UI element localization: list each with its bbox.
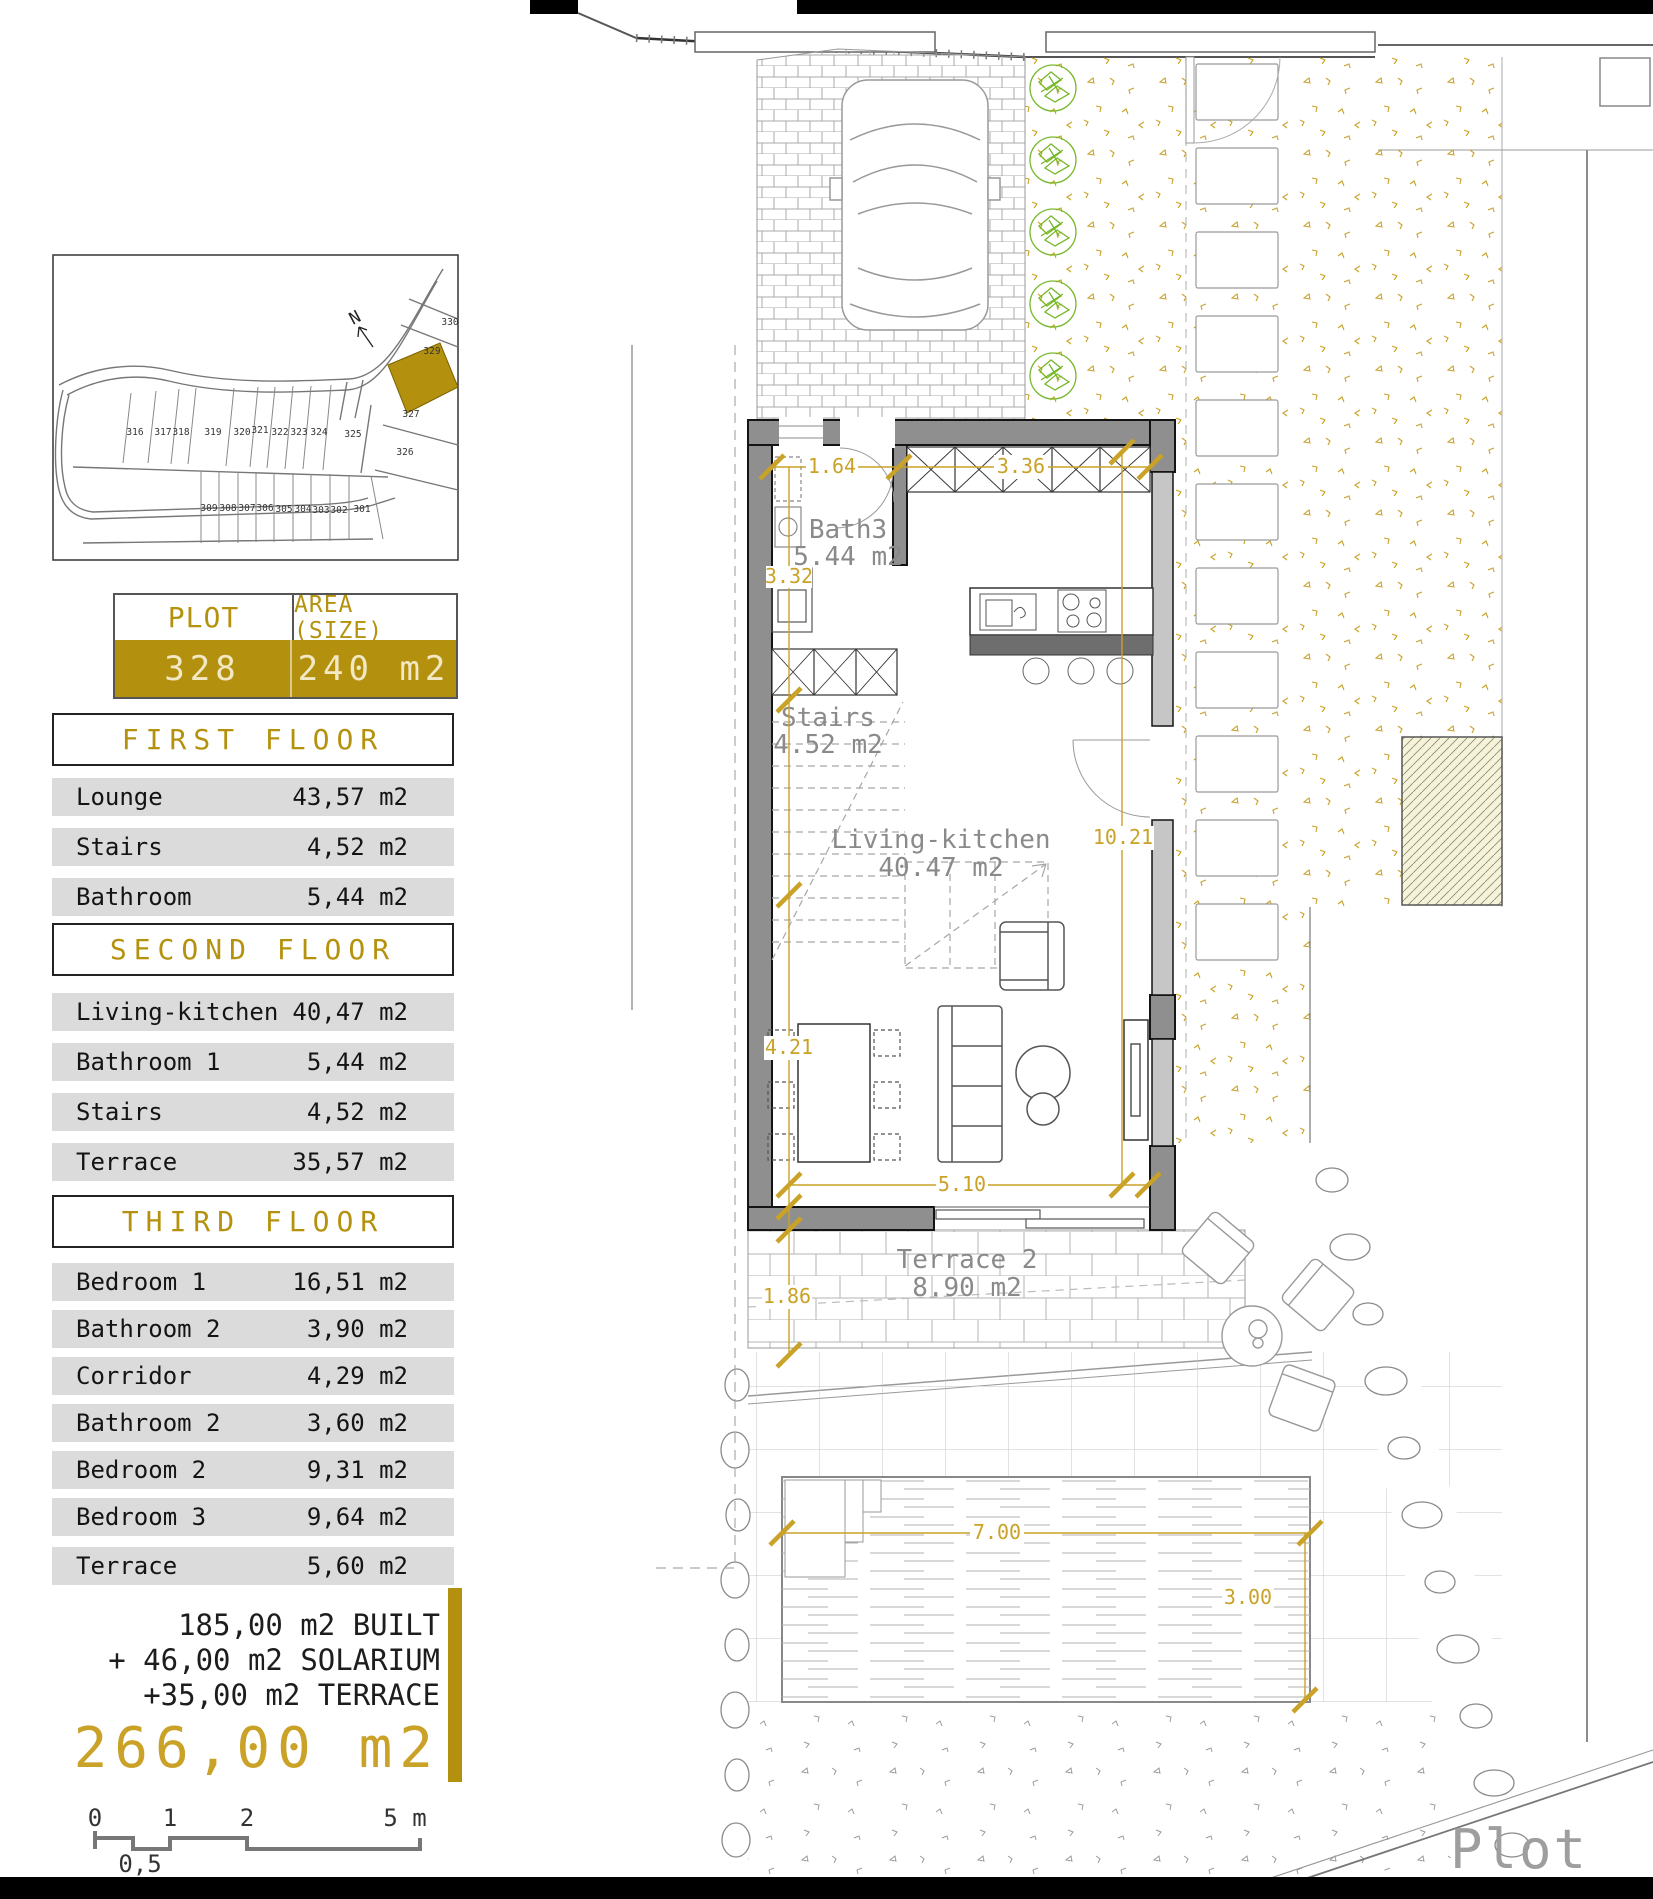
stool-icon [1068, 658, 1094, 684]
room-label: Bath3 [809, 515, 887, 545]
row-area: 4,52 m2 [307, 833, 454, 861]
svg-text:309: 309 [200, 503, 217, 514]
section-first-floor: FIRST FLOOR [52, 713, 454, 766]
svg-text:329: 329 [423, 346, 440, 357]
row-label: Corridor [52, 1362, 192, 1390]
sofa [938, 1006, 1002, 1162]
summary-terrace: +35,00 m2 TERRACE [52, 1678, 440, 1712]
table-row: Bedroom 3 9,64 m2 [52, 1498, 454, 1536]
table-row: Lounge 43,57 m2 [52, 778, 454, 816]
dimension: 3.36 [997, 454, 1045, 478]
gravel-area [748, 1702, 1502, 1895]
bottom-border-bar [0, 1877, 1653, 1899]
row-area: 43,57 m2 [292, 783, 454, 811]
row-label: Bedroom 1 [52, 1268, 206, 1296]
row-area: 9,31 m2 [307, 1456, 454, 1484]
table-row: Bathroom 1 5,44 m2 [52, 1043, 454, 1081]
stool-icon [1107, 658, 1133, 684]
plot-number: 328 [115, 640, 292, 697]
svg-text:5 m: 5 m [383, 1804, 426, 1832]
table-row: Bedroom 2 9,31 m2 [52, 1451, 454, 1489]
room-label: Living-kitchen [831, 825, 1050, 855]
dimension: 1.64 [808, 454, 856, 478]
svg-text:323: 323 [290, 427, 307, 438]
summary-built: 185,00 m2 BUILT [52, 1608, 440, 1642]
stepping-stones [1196, 64, 1278, 960]
svg-text:2: 2 [240, 1804, 254, 1832]
cabinet-row [772, 649, 897, 695]
svg-text:316: 316 [126, 427, 143, 438]
room-area: 40.47 m2 [878, 853, 1003, 883]
table-row: Terrace 35,57 m2 [52, 1143, 454, 1181]
car-icon [830, 80, 1000, 330]
svg-text:324: 324 [310, 427, 327, 438]
svg-text:319: 319 [204, 427, 221, 438]
row-area: 9,64 m2 [307, 1503, 454, 1531]
row-label: Bathroom 2 [52, 1315, 221, 1343]
room-label: Stairs [781, 703, 875, 733]
table-row: Corridor 4,29 m2 [52, 1357, 454, 1395]
section-third-floor: THIRD FLOOR [52, 1195, 454, 1248]
driveway [757, 49, 1025, 419]
row-label: Stairs [52, 1098, 163, 1126]
room-label: Terrace 2 [897, 1245, 1038, 1275]
svg-text:318: 318 [172, 427, 189, 438]
row-area: 35,57 m2 [292, 1148, 454, 1176]
windows [1152, 472, 1173, 1146]
house: Bath3 5.44 m2 Stairs 4.52 m2 Living-kitc… [748, 417, 1175, 1303]
row-area: 4,29 m2 [307, 1362, 454, 1390]
hatched-area [1402, 737, 1502, 905]
stool-icon [1023, 658, 1049, 684]
dimension: 3.00 [1224, 1585, 1272, 1609]
table-row: Bathroom 2 3,90 m2 [52, 1310, 454, 1348]
row-label: Bedroom 2 [52, 1456, 206, 1484]
svg-text:303: 303 [312, 505, 329, 516]
site-map: N 316317 318319 320321 322323 324325 309… [53, 255, 459, 560]
dimension: 10.21 [1093, 825, 1153, 849]
table-row: Terrace 5,60 m2 [52, 1547, 454, 1585]
svg-text:327: 327 [402, 409, 419, 420]
row-area: 3,60 m2 [307, 1409, 454, 1437]
scale-bar: 0 1 2 5 m 0,5 [88, 1804, 427, 1878]
row-label: Terrace [52, 1552, 177, 1580]
row-area: 4,52 m2 [307, 1098, 454, 1126]
svg-text:320: 320 [233, 427, 250, 438]
svg-text:321: 321 [251, 425, 268, 436]
svg-text:301: 301 [353, 504, 370, 515]
svg-text:306: 306 [256, 503, 273, 514]
plot-info-table: PLOT AREA (SIZE) 328 240 m2 [113, 593, 458, 699]
row-label: Stairs [52, 833, 163, 861]
svg-text:305: 305 [275, 504, 292, 515]
table-row: Bathroom 2 3,60 m2 [52, 1404, 454, 1442]
svg-text:0: 0 [88, 1804, 102, 1832]
svg-text:308: 308 [219, 503, 236, 514]
sliding-door [1026, 1219, 1144, 1228]
row-label: Bathroom 2 [52, 1409, 221, 1437]
dimension: 5.10 [938, 1172, 986, 1196]
row-label: Terrace [52, 1148, 177, 1176]
row-area: 16,51 m2 [292, 1268, 454, 1296]
svg-text:326: 326 [396, 447, 413, 458]
floorplan-sheet: Bath3 5.44 m2 Stairs 4.52 m2 Living-kitc… [0, 0, 1653, 1899]
table-row: Living-kitchen 40,47 m2 [52, 993, 454, 1031]
coffee-table [1027, 1093, 1059, 1125]
summary-solarium: + 46,00 m2 SOLARIUM [52, 1643, 440, 1677]
table-row: Bedroom 1 16,51 m2 [52, 1263, 454, 1301]
svg-text:330: 330 [441, 317, 458, 328]
svg-text:317: 317 [154, 427, 171, 438]
row-label: Lounge [52, 783, 163, 811]
row-area: 5,44 m2 [307, 1048, 454, 1076]
row-area: 40,47 m2 [292, 998, 454, 1026]
plot-watermark: Plot [1450, 1818, 1588, 1881]
dimension: 1.86 [763, 1284, 811, 1308]
sliding-door [936, 1210, 1040, 1219]
table-row: Stairs 4,52 m2 [52, 1093, 454, 1131]
dimension: 7.00 [973, 1520, 1021, 1544]
coffee-table [1016, 1046, 1070, 1100]
summary-total: 266,00 m2 [52, 1716, 440, 1781]
row-area: 3,90 m2 [307, 1315, 454, 1343]
section-second-floor: SECOND FLOOR [52, 923, 454, 976]
svg-text:325: 325 [344, 429, 361, 440]
row-area: 5,60 m2 [307, 1552, 454, 1580]
table-row: Bathroom 5,44 m2 [52, 878, 454, 916]
row-label: Bedroom 3 [52, 1503, 206, 1531]
room-area: 8.90 m2 [912, 1273, 1022, 1303]
svg-text:0,5: 0,5 [118, 1850, 161, 1878]
summary-accent-bar [448, 1588, 462, 1782]
dimension: 4.21 [765, 1035, 813, 1059]
table-row: Stairs 4,52 m2 [52, 828, 454, 866]
svg-text:302: 302 [330, 505, 347, 516]
svg-text:1: 1 [163, 1804, 177, 1832]
row-area: 5,44 m2 [307, 883, 454, 911]
plot-area: 240 m2 [292, 640, 456, 697]
svg-text:322: 322 [271, 427, 288, 438]
row-label: Living-kitchen [52, 998, 278, 1026]
area-header-cell: AREA (SIZE) [294, 595, 456, 640]
plot-header-cell: PLOT [115, 595, 294, 640]
dimension: 3.32 [765, 564, 813, 588]
svg-text:304: 304 [294, 504, 311, 515]
row-label: Bathroom 1 [52, 1048, 221, 1076]
setback-lines [632, 345, 735, 1568]
svg-text:307: 307 [238, 503, 255, 514]
row-label: Bathroom [52, 883, 192, 911]
